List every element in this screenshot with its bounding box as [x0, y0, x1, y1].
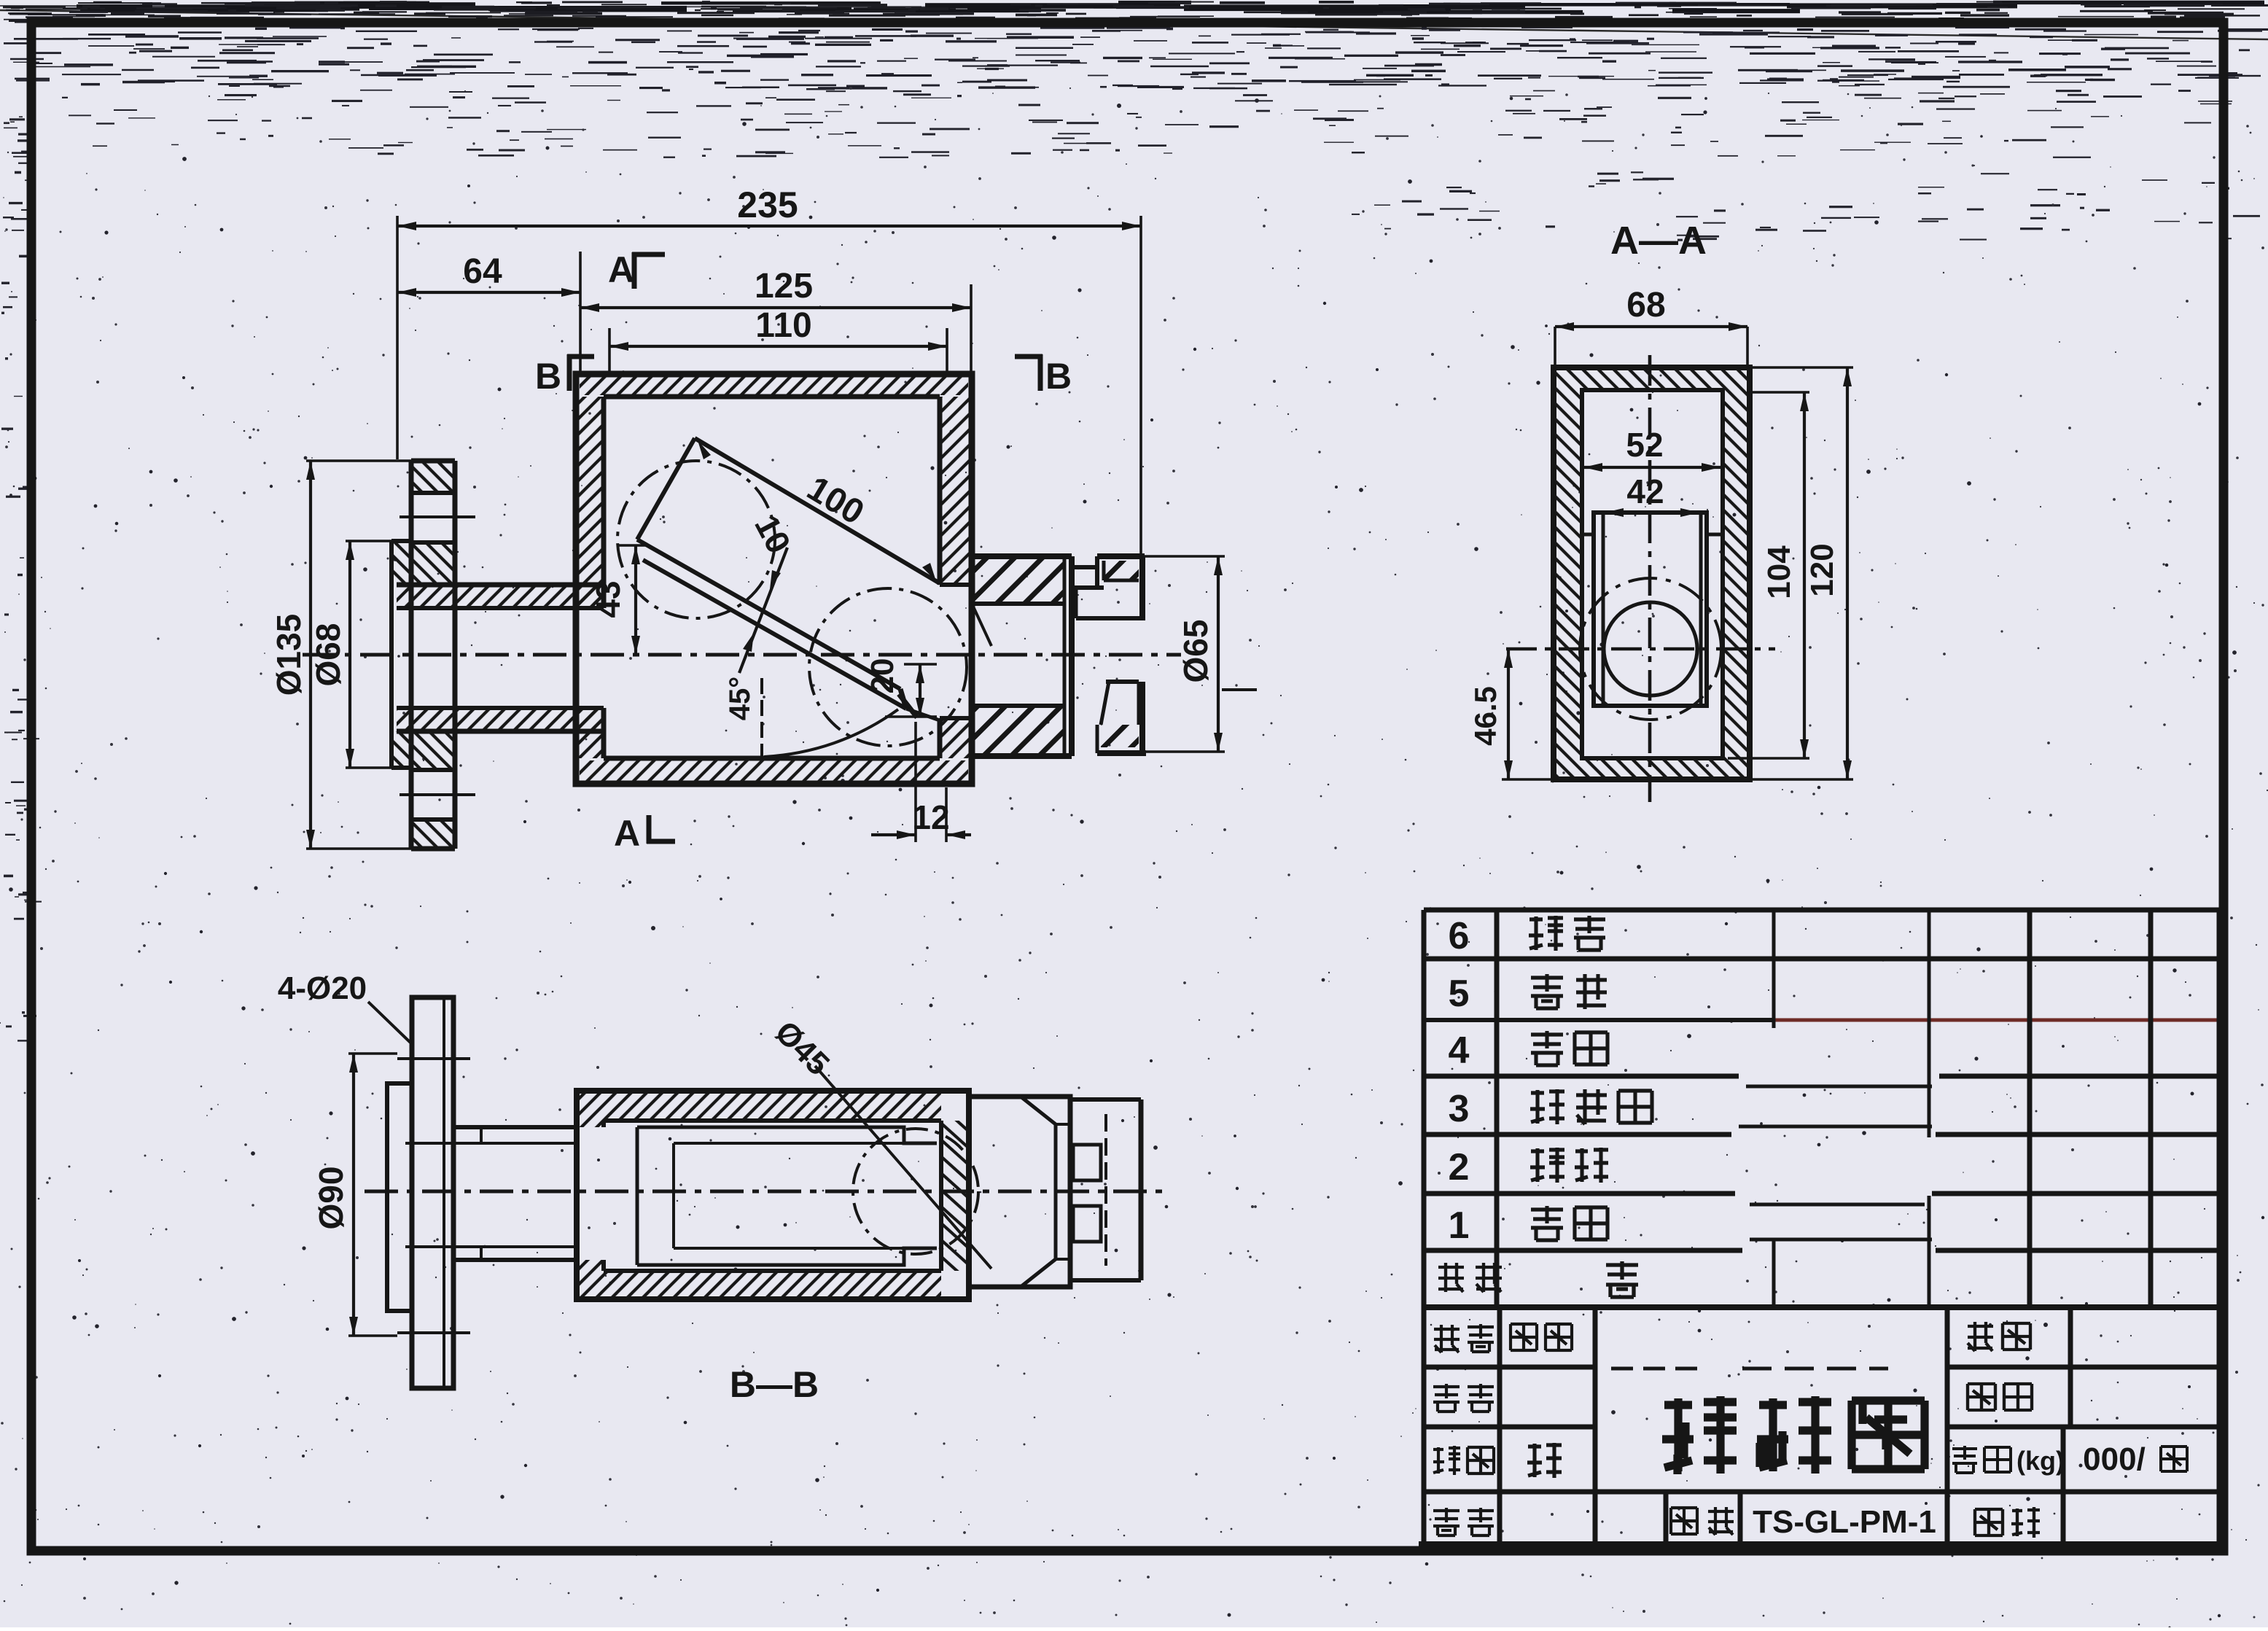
svg-text:45°: 45° [724, 677, 756, 721]
svg-text:6: 6 [1449, 915, 1470, 957]
svg-text:TS-GL-PM-1: TS-GL-PM-1 [1753, 1504, 1936, 1540]
svg-text:64: 64 [463, 252, 502, 291]
svg-text:Ø90: Ø90 [312, 1167, 350, 1230]
svg-text:104: 104 [1761, 545, 1797, 599]
svg-text:235: 235 [737, 184, 798, 225]
svg-text:20: 20 [865, 658, 900, 694]
svg-text:43: 43 [589, 580, 627, 618]
svg-text:120: 120 [1804, 543, 1840, 596]
svg-text:4-Ø20: 4-Ø20 [278, 970, 367, 1006]
svg-text:Ø65: Ø65 [1177, 620, 1215, 683]
svg-text:B: B [1045, 356, 1072, 397]
svg-text:42: 42 [1626, 472, 1664, 510]
svg-text:2: 2 [1449, 1146, 1470, 1188]
svg-text:A: A [608, 249, 634, 290]
svg-text:68: 68 [1626, 286, 1665, 324]
svg-text:110: 110 [755, 306, 811, 345]
svg-text:52: 52 [1626, 426, 1663, 464]
svg-text:1: 1 [1449, 1204, 1470, 1247]
svg-text:4: 4 [1449, 1029, 1470, 1072]
svg-text:Ø68: Ø68 [309, 623, 347, 687]
svg-text:(kg): (kg) [2016, 1446, 2065, 1476]
svg-text:000/: 000/ [2083, 1441, 2146, 1477]
svg-text:B—B: B—B [730, 1364, 819, 1405]
svg-text:5: 5 [1449, 973, 1470, 1015]
svg-text:12: 12 [912, 798, 949, 836]
svg-text:A: A [614, 813, 640, 854]
svg-text:46.5: 46.5 [1468, 686, 1503, 746]
svg-text:125: 125 [755, 267, 813, 305]
svg-text:Ø135: Ø135 [270, 614, 308, 696]
svg-text:B: B [535, 356, 561, 397]
svg-text:A—A: A—A [1610, 219, 1707, 262]
svg-text:3: 3 [1449, 1088, 1470, 1130]
